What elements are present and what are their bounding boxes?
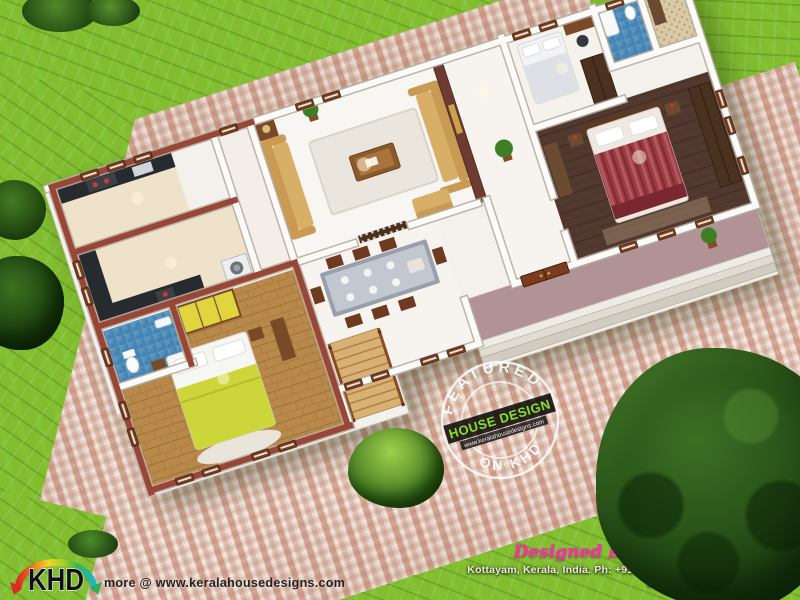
footer-note: more @ www.keralahousedesigns.com bbox=[104, 576, 345, 590]
bush bbox=[348, 428, 444, 508]
logo-text: KHD bbox=[28, 562, 84, 597]
scene: www.keralahousedesigns.com www.keralahou… bbox=[0, 0, 800, 600]
bush bbox=[68, 530, 118, 558]
